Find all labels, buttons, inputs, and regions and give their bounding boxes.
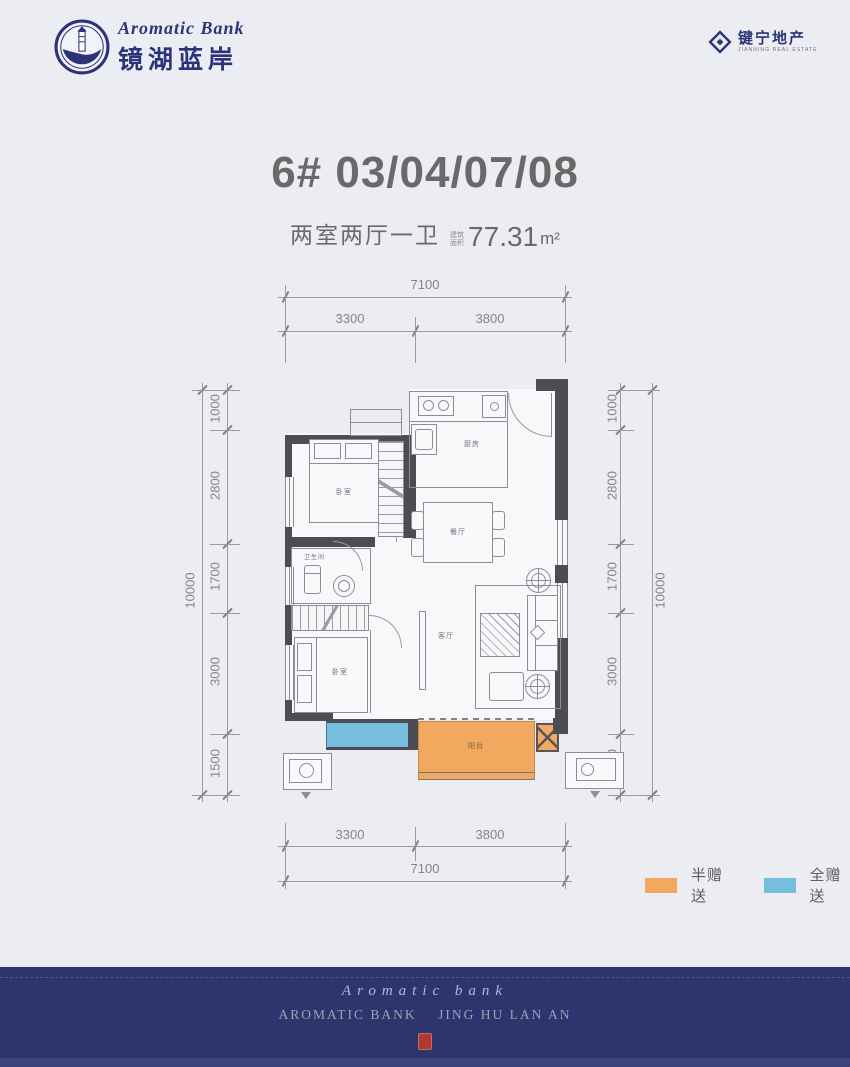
legend-label-full-gift: 全赠送 [810, 864, 850, 906]
fan-inner-ring [530, 679, 545, 694]
dim-top-seg2: 3800 [460, 311, 520, 326]
wall [285, 713, 333, 721]
room-label-bathroom: 卫生间 [304, 552, 325, 561]
room-label-kitchen: 厨房 [452, 439, 492, 449]
washer-drum [299, 763, 314, 778]
sofa-cushion-line [535, 620, 558, 621]
hall-cabinet [419, 611, 426, 690]
brand-logo: Aromatic Bank 镜湖蓝岸 [54, 18, 245, 76]
dim-ext-line [285, 285, 286, 363]
room-label-bedroom-top: 卧室 [324, 487, 364, 497]
full-gift-bay-window [326, 719, 411, 750]
pillow [297, 643, 312, 671]
footer-divider [0, 977, 850, 978]
footer-bottom-strip [0, 1058, 850, 1067]
dim-ext-line [210, 544, 240, 545]
brand-chinese-name: 镜湖蓝岸 [118, 40, 245, 76]
kitchen-counter [409, 421, 508, 422]
wash-basin-inner [338, 580, 350, 592]
layout-type: 两室两厅一卫 [290, 216, 440, 250]
sofa-cushion-line [535, 645, 558, 646]
dim-line [227, 383, 228, 802]
blanket-line [316, 637, 317, 713]
dim-right-total: 10000 [653, 561, 668, 621]
dim-line [278, 331, 572, 332]
dim-bottom-seg1: 3300 [320, 827, 380, 842]
footer-band: Aromatic bank AROMATIC BANK JING HU LAN … [0, 967, 850, 1067]
dim-ext-line [415, 317, 416, 363]
lighthouse-emblem-icon [54, 19, 110, 75]
pillow [345, 443, 372, 459]
floorplan: 7100 3300 3800 3300 3800 7100 10000 [180, 275, 680, 915]
armchair [489, 672, 524, 701]
room-label-living: 客厅 [426, 631, 466, 641]
window [557, 520, 568, 565]
burner [423, 400, 434, 411]
rug [480, 613, 520, 657]
page-title: 6# 03/04/07/08 [0, 148, 850, 198]
footer-caps-text: AROMATIC BANK JING HU LAN AN [0, 1007, 850, 1023]
dim-ext-line [608, 430, 634, 431]
window [285, 645, 294, 700]
wall [553, 718, 568, 734]
chair [492, 538, 505, 557]
developer-diamond-icon [708, 30, 732, 54]
dim-right-seg2: 2800 [605, 456, 620, 516]
wardrobe-hatch [291, 605, 369, 631]
dim-ext-line [210, 734, 240, 735]
sliding-door [418, 718, 535, 720]
wall [285, 435, 292, 477]
ac-fan [581, 763, 594, 776]
developer-name: 键宁地产 [738, 31, 818, 48]
room-label-dining: 餐厅 [438, 527, 478, 537]
dim-left-seg3: 1700 [208, 547, 223, 607]
dim-left-seg5: 1500 [208, 734, 223, 794]
chair [411, 511, 424, 530]
brand-script-name: Aromatic Bank [118, 18, 245, 39]
developer-name-en: JIANNING REAL ESTATE [738, 48, 818, 54]
blanket-line [309, 463, 379, 464]
chair [492, 511, 505, 530]
unit-subtitle: 两室两厅一卫 建筑面积 77.31 m² [0, 216, 850, 250]
dim-line [620, 383, 621, 802]
dim-ext-line [192, 795, 240, 796]
toilet [304, 565, 321, 594]
window [285, 477, 294, 527]
wall [285, 537, 375, 547]
pillow [314, 443, 341, 459]
dim-ext-line [565, 285, 566, 363]
ceiling-fan-icon [526, 568, 551, 593]
dim-ext-line [192, 390, 240, 391]
kitchen-faucet [490, 402, 499, 411]
poster-page: Aromatic Bank 镜湖蓝岸 键宁地产 JIANNING REAL ES… [0, 0, 850, 1067]
dim-top-seg1: 3300 [320, 311, 380, 326]
dim-ext-line [210, 613, 240, 614]
legend: 半赠送 全赠送 [645, 864, 850, 906]
wall [536, 379, 568, 391]
dim-bottom-total: 7100 [395, 861, 455, 876]
balcony-railing [418, 772, 535, 780]
area-label: 建筑面积 [450, 232, 466, 248]
room-label-bedroom-bottom: 卧室 [320, 667, 360, 677]
dim-ext-line [210, 430, 240, 431]
dim-right-seg3: 1700 [605, 547, 620, 607]
kitchen-basin-inner [415, 429, 433, 450]
legend-swatch-full-gift [764, 878, 796, 893]
dim-ext-line [415, 827, 416, 861]
dim-left-seg2: 2800 [208, 456, 223, 516]
dim-ext-line [608, 613, 634, 614]
drain-arrow [590, 791, 600, 803]
dim-ext-line [608, 795, 660, 796]
footer-script-text: Aromatic bank [0, 983, 850, 1000]
closet-hatch [378, 441, 404, 537]
dim-left-total: 10000 [183, 561, 198, 621]
pillow [297, 675, 312, 703]
developer-logo: 键宁地产 JIANNING REAL ESTATE [708, 30, 818, 54]
ceiling-fan-icon [525, 674, 550, 699]
dim-ext-line [285, 823, 286, 889]
fan-inner-ring [531, 573, 546, 588]
dim-line [278, 846, 572, 847]
burner [438, 400, 449, 411]
dim-ext-line [565, 823, 566, 889]
legend-swatch-half-gift [645, 878, 677, 893]
wall [408, 719, 418, 750]
dim-ext-line [608, 734, 634, 735]
dim-right-seg4: 3000 [605, 642, 620, 702]
legend-label-half-gift: 半赠送 [691, 864, 731, 906]
bathroom-room [291, 548, 371, 604]
wall [555, 391, 568, 520]
dim-line [202, 383, 203, 802]
dim-left-seg4: 3000 [208, 642, 223, 702]
wall [555, 565, 568, 583]
red-seal-stamp [418, 1033, 432, 1050]
dim-bottom-seg2: 3800 [460, 827, 520, 842]
room-label-balcony: 阳台 [452, 741, 500, 751]
dim-line [278, 881, 572, 882]
dim-line [278, 297, 572, 298]
dim-ext-line [608, 390, 660, 391]
window-line [350, 422, 402, 423]
dim-top-total: 7100 [395, 277, 455, 292]
chair [411, 538, 424, 557]
drain-arrow [301, 792, 311, 804]
area-unit: m² [540, 228, 560, 250]
toilet-tank-line [304, 573, 321, 574]
dim-ext-line [608, 544, 634, 545]
door-leaf [551, 393, 552, 437]
area-value: 77.31 [468, 224, 538, 250]
